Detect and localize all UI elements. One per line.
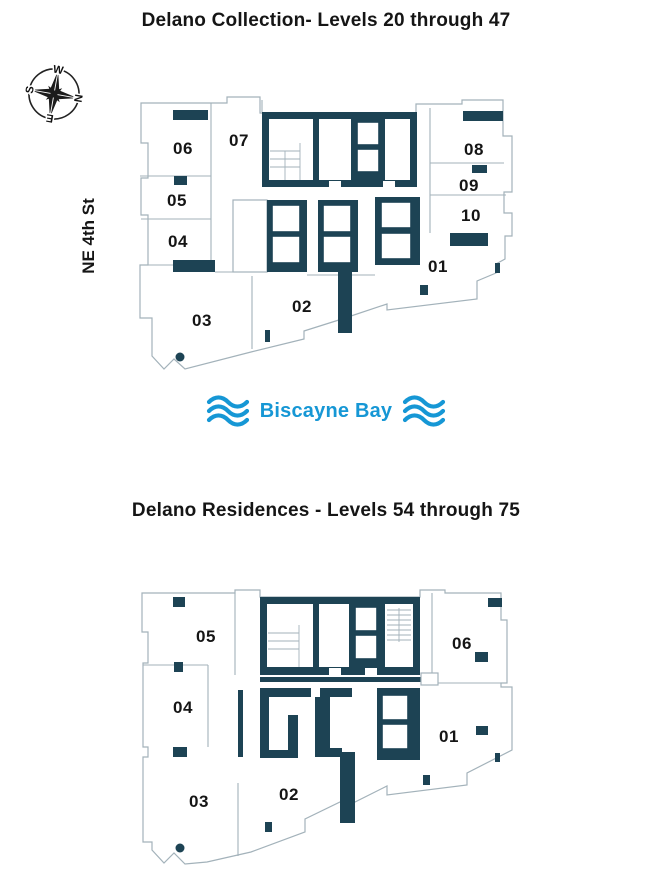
plan2-elevator-2 xyxy=(382,724,408,749)
plan2-corridor-wall xyxy=(260,677,432,682)
plan2-round-column xyxy=(176,844,185,853)
plan2-wall-seg xyxy=(320,688,352,697)
plan2-elevator-1 xyxy=(382,695,408,720)
plan1-accent-sq xyxy=(472,165,487,173)
unit-label-05: 05 xyxy=(167,191,187,211)
plan2-thin-wall xyxy=(238,690,243,757)
unit-label-10: 10 xyxy=(461,206,481,226)
plan1-demising-wall xyxy=(338,265,352,333)
unit-label-08: 08 xyxy=(464,140,484,160)
unit-label-05: 05 xyxy=(196,627,216,647)
plan1-accent-bar xyxy=(173,110,208,120)
compass-e: E xyxy=(45,111,54,124)
compass-rose-svg: N E S W xyxy=(16,56,92,132)
floor-plan-residences-svg xyxy=(133,570,523,890)
plan2-wall-seg xyxy=(315,697,330,752)
compass-w: W xyxy=(52,64,65,78)
compass-n: N xyxy=(71,93,84,103)
compass-s: S xyxy=(24,85,37,94)
plan2-wall-seg xyxy=(315,748,342,757)
unit-label-01: 01 xyxy=(439,727,459,747)
plan1-core-elevator-2 xyxy=(357,149,379,172)
plan2-core-room-mid xyxy=(319,604,349,667)
plan1-column xyxy=(265,330,270,342)
plan2-accent-sq xyxy=(475,652,488,662)
plan2-title: Delano Residences - Levels 54 through 75 xyxy=(0,500,652,522)
plan2-accent-sq xyxy=(173,747,187,757)
plan2-accent-sq xyxy=(174,662,183,672)
bay-label: Biscayne Bay xyxy=(260,400,392,423)
wave-icon xyxy=(402,395,446,427)
unit-label-03: 03 xyxy=(189,792,209,812)
plan2-core-room-left xyxy=(267,604,313,667)
plan1-lobby-room xyxy=(233,200,267,272)
plan2-accent-sq xyxy=(476,726,488,735)
unit-label-02: 02 xyxy=(292,297,312,317)
plan2-core-door-gap-2 xyxy=(365,668,377,675)
street-label: NE 4th St xyxy=(79,184,99,288)
unit-label-02: 02 xyxy=(279,785,299,805)
plan2-accent-sq xyxy=(488,598,502,607)
unit-label-04: 04 xyxy=(173,698,193,718)
plan2-core-elevator-1 xyxy=(355,607,377,631)
unit-label-09: 09 xyxy=(459,176,479,196)
plan1-core-room xyxy=(319,119,351,180)
plan1-bank1-elevator-1 xyxy=(272,205,300,232)
floor-plan-collection: 06 07 08 09 10 05 04 01 02 03 xyxy=(133,93,523,393)
plan1-core-door-gap-1 xyxy=(329,181,341,188)
plan1-accent-bar xyxy=(463,111,503,121)
plan2-column xyxy=(265,822,272,832)
plan2-column xyxy=(495,753,500,762)
plan1-round-column xyxy=(176,353,185,362)
unit-label-06: 06 xyxy=(452,634,472,654)
floor-plan-residences: 05 06 04 01 02 03 xyxy=(133,570,523,890)
plan2-core-door-gap-1 xyxy=(329,668,341,675)
plan1-bank3-elevator-1 xyxy=(381,202,411,228)
plan2-corridor-stub xyxy=(421,673,438,685)
plan2-accent-sq xyxy=(173,597,185,607)
plan2-core-elevator-2 xyxy=(355,635,377,659)
plan1-bank3-elevator-2 xyxy=(381,233,411,259)
plan1-accent-bar xyxy=(450,233,488,246)
bay-label-row: Biscayne Bay xyxy=(0,395,652,427)
plan1-core-stair-room xyxy=(269,119,313,180)
plan2-demising-wall xyxy=(340,752,355,823)
plan1-bank1-elevator-2 xyxy=(272,236,300,263)
plan2-wall-seg xyxy=(260,750,298,758)
unit-label-07: 07 xyxy=(229,131,249,151)
unit-label-06: 06 xyxy=(173,139,193,159)
plan1-core-room-right xyxy=(385,119,410,180)
plan1-accent-bar xyxy=(173,260,215,272)
plan1-bank2-elevator-1 xyxy=(323,205,351,232)
floor-plan-collection-svg xyxy=(133,93,523,393)
plan1-column xyxy=(495,263,500,273)
plan1-core-door-gap-2 xyxy=(383,181,395,188)
compass-rose: N E S W xyxy=(16,56,92,132)
plan1-core-elevator-1 xyxy=(357,122,379,145)
unit-label-04: 04 xyxy=(168,232,188,252)
floorplan-key-sheet: Delano Collection- Levels 20 through 47 … xyxy=(0,0,652,894)
unit-label-01: 01 xyxy=(428,257,448,277)
plan1-column xyxy=(420,285,428,295)
plan1-accent-sq xyxy=(174,176,187,185)
plan1-bank2-elevator-2 xyxy=(323,236,351,263)
plan1-title: Delano Collection- Levels 20 through 47 xyxy=(0,10,652,32)
plan2-column xyxy=(423,775,430,785)
unit-label-03: 03 xyxy=(192,311,212,331)
wave-icon xyxy=(206,395,250,427)
plan2-wall-seg xyxy=(260,688,269,758)
